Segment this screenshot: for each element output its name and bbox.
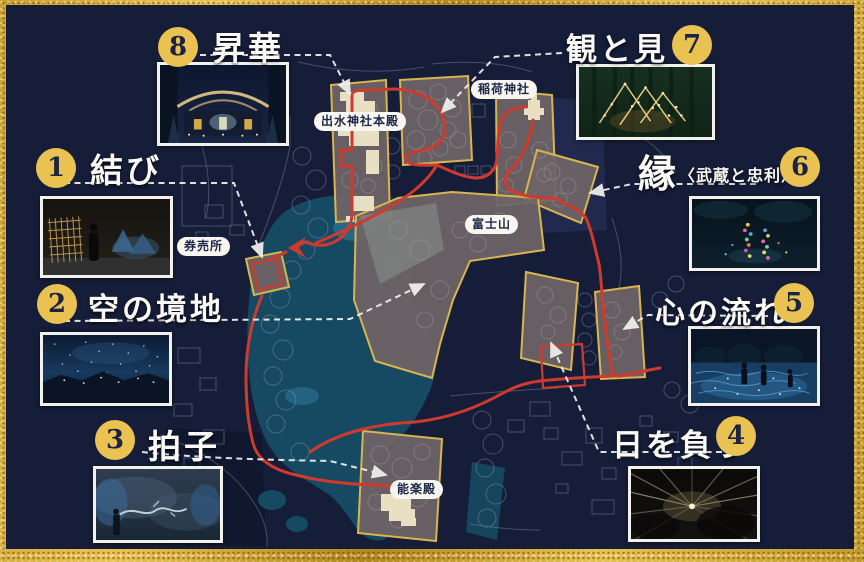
event-route-map: 出水神社本殿 稲荷神社 富士山 券売所 能楽殿 8 昇華 観と見 7 1 結び … (0, 0, 864, 562)
map-label-fujisan: 富士山 (465, 215, 518, 234)
map-label-izumi-honden: 出水神社本殿 (314, 112, 406, 131)
map-label-inari: 稲荷神社 (471, 80, 537, 99)
spot-6-badge: 6 (780, 147, 820, 187)
map-label-ticket-office: 券売所 (177, 237, 230, 256)
photo-4 (628, 466, 760, 542)
zone-hi (521, 272, 578, 370)
spot-2-badge: 2 (37, 284, 77, 324)
photo-2 (40, 332, 172, 406)
spot-8-label: 昇華 (212, 22, 284, 70)
spot-8-badge: 8 (158, 27, 198, 67)
spot-7-badge: 7 (672, 25, 712, 65)
photo-6 (689, 196, 820, 271)
photo-5 (688, 326, 820, 406)
spot-3-label: 拍子 (148, 420, 220, 468)
spot-1-badge: 1 (36, 148, 76, 188)
photo-8 (157, 62, 289, 146)
spot-1-label: 結び (90, 144, 162, 192)
spot-6-label: 縁〈武蔵と忠利〉 (638, 143, 798, 198)
map-label-noh-stage: 能楽殿 (390, 480, 443, 499)
spot-2-label: 空の境地 (88, 284, 224, 329)
spot-5-label: 心の流れ (655, 288, 787, 332)
spot-7-label: 観と見 (566, 24, 668, 69)
spot-3-badge: 3 (95, 420, 135, 460)
spot-6-label-main: 縁 (638, 151, 679, 196)
spot-5-badge: 5 (774, 283, 814, 323)
photo-7 (576, 64, 715, 140)
spot-4-badge: 4 (716, 416, 756, 456)
photo-3 (93, 466, 223, 543)
photo-1 (40, 196, 173, 278)
